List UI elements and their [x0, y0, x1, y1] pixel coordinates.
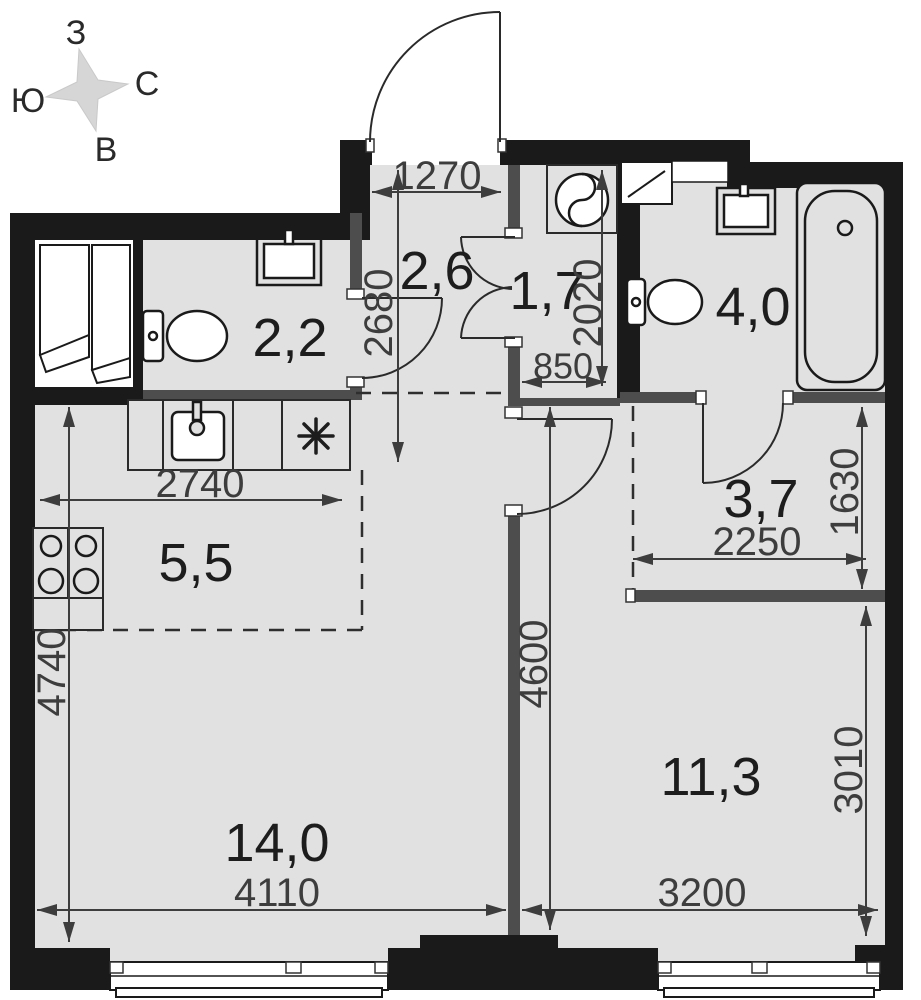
jamb — [696, 391, 706, 404]
stove-icon — [282, 400, 350, 470]
window-living-room — [110, 962, 388, 997]
floor-plan-page: З С Ю В — [0, 0, 921, 1000]
wall-shaft-right — [133, 240, 143, 405]
wall-left — [10, 213, 35, 990]
wall-laundry-left-upper — [508, 165, 520, 230]
compass-label-south: Ю — [11, 82, 45, 120]
svg-text:2250: 2250 — [713, 520, 802, 564]
room-label-kitchen: 5,5 — [158, 533, 233, 593]
kitchen-counter — [128, 400, 350, 470]
wall-wc-bottom — [143, 390, 362, 400]
wall-laundry-left-lower — [508, 346, 520, 406]
wall-hall-horizontal — [508, 398, 620, 406]
wall-bottom-pier — [388, 948, 658, 990]
entrance-door — [370, 12, 500, 142]
svg-text:3200: 3200 — [658, 871, 747, 915]
shaft-panel-icon — [92, 245, 130, 370]
svg-text:1630: 1630 — [823, 448, 867, 537]
jamb — [505, 407, 522, 418]
room-label-living-room: 14,0 — [224, 813, 329, 873]
window-bedroom — [658, 962, 880, 997]
compass-label-east: В — [95, 131, 118, 169]
wall-shaft-bottom — [35, 387, 143, 405]
svg-text:1270: 1270 — [393, 154, 482, 198]
compass-label-west: З — [66, 14, 87, 52]
wall-sink-icon — [257, 230, 321, 285]
svg-text:2020: 2020 — [566, 259, 610, 348]
toilet-icon — [627, 279, 702, 325]
wall-central — [508, 515, 520, 935]
toilet-icon — [143, 311, 227, 361]
washing-machine-icon — [547, 165, 617, 233]
svg-text:3010: 3010 — [827, 726, 871, 815]
niche-slot-icon — [672, 161, 728, 182]
bathtub-icon — [797, 183, 885, 390]
room-label-wc: 2,2 — [252, 308, 327, 368]
svg-text:4600: 4600 — [512, 620, 556, 709]
compass-star-icon — [46, 49, 128, 131]
svg-text:4110: 4110 — [234, 871, 320, 915]
jamb — [626, 589, 635, 602]
room-label-hallway: 2,6 — [399, 241, 474, 301]
room-label-bathroom: 4,0 — [715, 277, 790, 337]
room-label-bedroom: 11,3 — [660, 747, 761, 807]
wall-bathroom-bottom-left — [620, 392, 700, 403]
svg-text:4740: 4740 — [30, 628, 74, 717]
svg-text:2740: 2740 — [156, 462, 245, 506]
svg-text:2680: 2680 — [357, 269, 401, 358]
compass-rose: З С Ю В — [11, 14, 159, 169]
floor-plan-canvas: З С Ю В — [0, 0, 921, 1000]
duct-shaft — [35, 240, 133, 387]
wall-bottom-left — [10, 948, 110, 990]
wall-dressing-bottom — [628, 590, 885, 602]
jamb — [347, 377, 364, 387]
wall-right — [885, 162, 903, 990]
compass-label-north: С — [135, 65, 160, 103]
wall-bottom-pier-tier — [420, 935, 558, 948]
jamb — [783, 391, 793, 404]
svg-text:850: 850 — [533, 346, 593, 387]
wall-bathroom-bottom-right — [790, 392, 885, 403]
